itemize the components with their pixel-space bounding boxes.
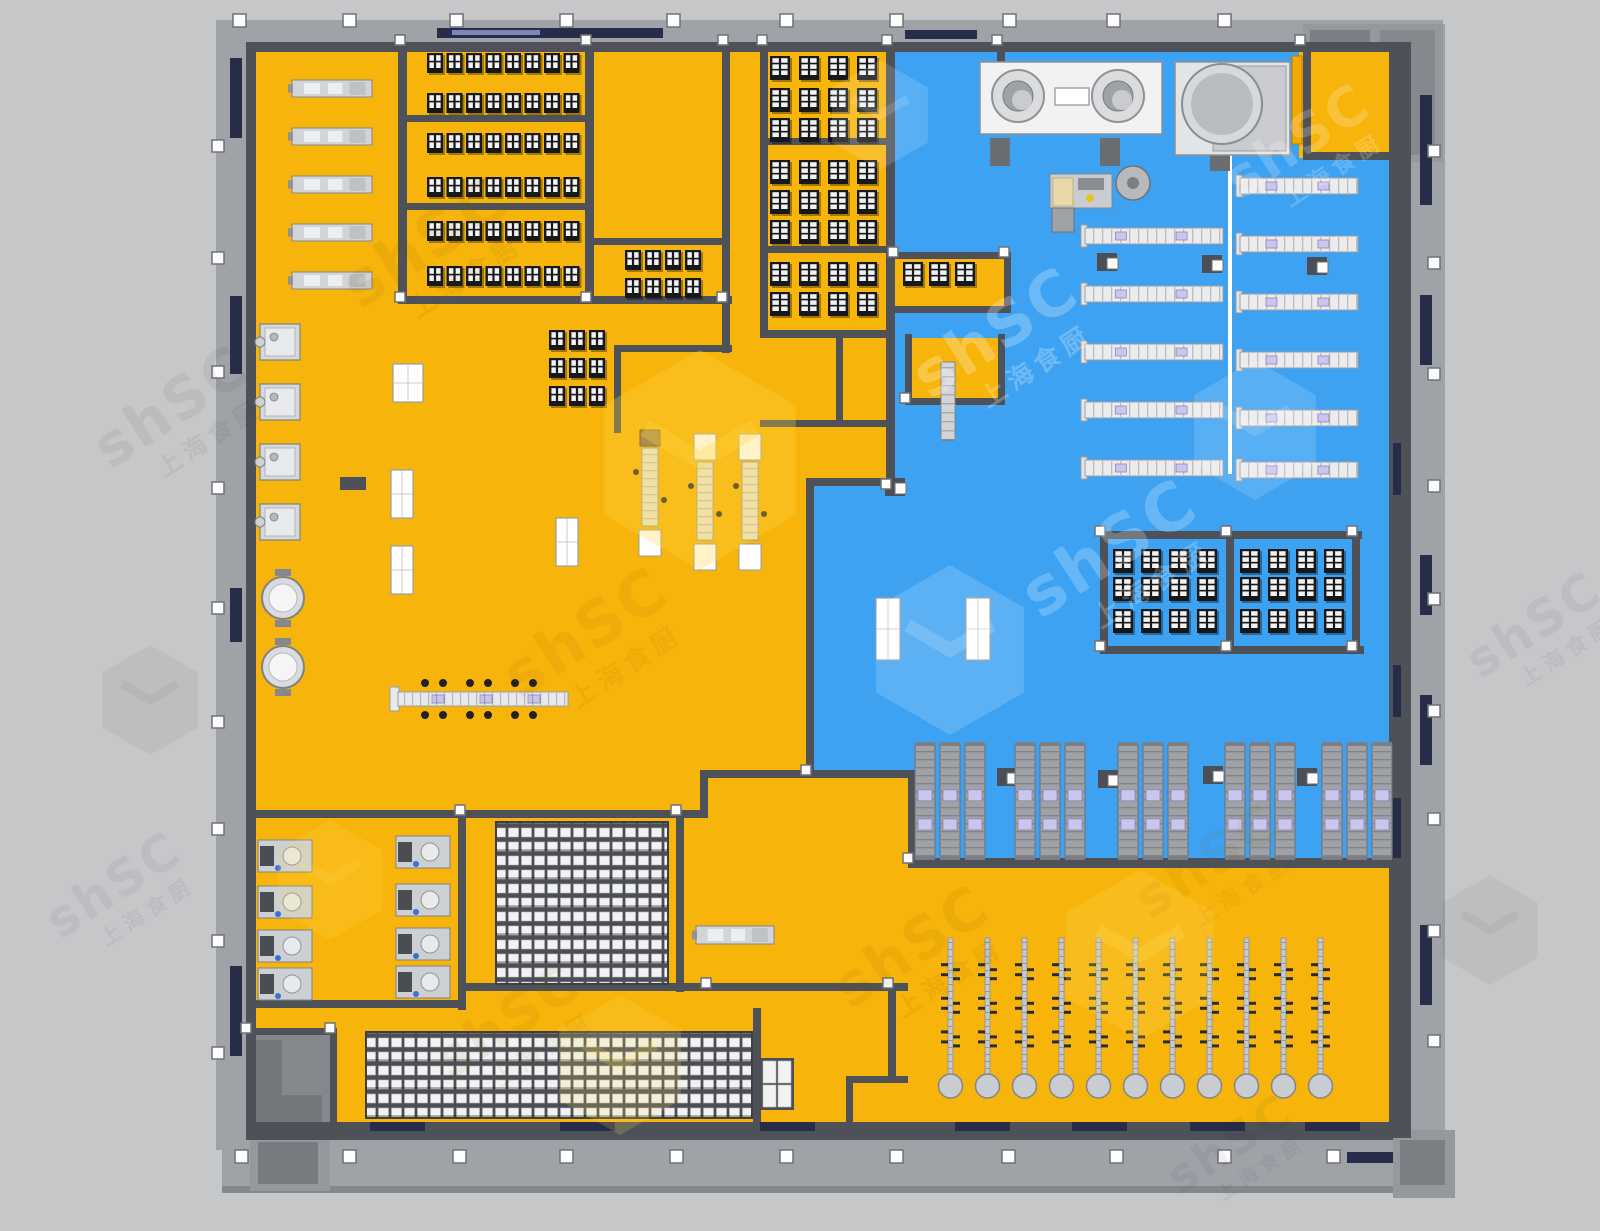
range-pane — [1208, 623, 1215, 628]
hang-rung — [1245, 1033, 1249, 1034]
trolley-stripe — [1119, 783, 1137, 784]
range-pane — [468, 62, 473, 68]
column-cube — [1428, 813, 1440, 825]
trolley-stripe — [1276, 775, 1294, 776]
hang-hook — [1126, 1040, 1133, 1043]
range-pane — [429, 142, 434, 148]
hang-rung — [1319, 970, 1323, 971]
range-pane — [781, 228, 788, 233]
range-pane — [1335, 585, 1342, 590]
hang-hook — [1212, 1011, 1219, 1014]
trolley-rack — [965, 742, 985, 860]
range-pane — [654, 259, 659, 265]
range-pane — [667, 287, 672, 293]
trolley-stripe — [1373, 815, 1391, 816]
range-pane — [1326, 591, 1333, 596]
hang-rung — [1023, 942, 1027, 943]
hang-rung — [1282, 1040, 1286, 1041]
column-cube — [1221, 641, 1231, 651]
range-pane — [507, 55, 512, 61]
trolley-stripe — [916, 807, 934, 808]
range-pane — [573, 268, 578, 274]
hang-hook — [1138, 1044, 1145, 1047]
trolley-screen — [1018, 819, 1032, 830]
grid-shelf-line — [366, 1115, 752, 1117]
range-pane — [830, 270, 837, 275]
range-unit — [828, 292, 850, 318]
range-pane — [830, 174, 837, 179]
range-pane — [571, 388, 576, 394]
range-pane — [1335, 551, 1342, 556]
wall-segment — [760, 42, 768, 338]
trolley-stripe — [916, 759, 934, 760]
range-pane — [527, 179, 532, 185]
bench-tick — [1210, 287, 1211, 301]
range-unit — [770, 118, 792, 144]
column-cube — [1428, 925, 1440, 937]
range-unit — [525, 177, 543, 199]
range-pane — [781, 306, 788, 311]
trolley-stripe — [1373, 847, 1391, 848]
range-pane — [1326, 551, 1333, 556]
range-unit — [770, 56, 792, 82]
hang-rung — [1171, 1033, 1175, 1034]
trolley-stripe — [1348, 759, 1366, 760]
hang-hook — [1323, 1035, 1330, 1038]
packing-tick — [500, 693, 501, 705]
trolley-stripe — [1373, 831, 1391, 832]
range-pane — [1279, 623, 1286, 628]
range-pane — [488, 142, 493, 148]
column-cube — [212, 140, 224, 152]
bench-tick — [1293, 237, 1294, 251]
range-pane — [694, 280, 699, 286]
range-unit — [505, 133, 523, 155]
hang-rung — [1060, 1061, 1064, 1062]
hang-rung — [1023, 949, 1027, 950]
range-pane — [674, 252, 679, 258]
range-unit — [1169, 609, 1191, 635]
hang-rung — [1060, 1033, 1064, 1034]
range-pane — [558, 360, 563, 366]
hang-rung — [1097, 1054, 1101, 1055]
range-pane — [449, 55, 454, 61]
range-pane — [772, 174, 779, 179]
machine-panel — [304, 179, 320, 190]
trolley-stripe — [1041, 831, 1059, 832]
kettle-bowl — [269, 584, 297, 612]
range-pane — [527, 135, 532, 141]
range-pane — [1326, 563, 1333, 568]
range-unit — [770, 190, 792, 216]
column-cube — [1221, 526, 1231, 536]
range-unit — [427, 133, 445, 155]
range-pane — [634, 252, 639, 258]
trolley-stripe — [1323, 783, 1341, 784]
range-pane — [553, 275, 558, 281]
work-table — [391, 546, 413, 594]
hang-rung — [1097, 1026, 1101, 1027]
window-slit — [955, 1122, 1010, 1131]
hang-rung — [1319, 949, 1323, 950]
range-unit — [544, 133, 562, 155]
packing-tick — [460, 693, 461, 705]
range-pane — [546, 135, 551, 141]
hang-hook — [1200, 1030, 1207, 1033]
range-pane — [475, 142, 480, 148]
hang-rung — [1060, 991, 1064, 992]
range-pane — [772, 70, 779, 75]
range-unit — [799, 220, 821, 246]
trolley-screen — [1068, 790, 1082, 801]
range-pane — [1326, 585, 1333, 590]
range-pane — [810, 64, 817, 69]
bench-tick — [1111, 287, 1112, 301]
window-slit — [1420, 295, 1432, 365]
packing-screen — [432, 695, 444, 703]
window-slit — [1072, 1122, 1127, 1131]
column-cube — [667, 14, 680, 27]
range-pane — [475, 102, 480, 108]
door-cube-face — [1107, 258, 1118, 269]
hang-rung — [1245, 1040, 1249, 1041]
range-pane — [772, 228, 779, 233]
range-pane — [1180, 623, 1187, 628]
bench-tick — [1093, 461, 1094, 475]
wall-segment — [722, 42, 730, 304]
hang-rung — [1245, 1061, 1249, 1062]
hang-rung — [1319, 942, 1323, 943]
hang-hook — [941, 1007, 948, 1010]
range-pane — [781, 222, 788, 227]
range-pane — [566, 62, 571, 68]
range-pane — [573, 55, 578, 61]
range-pane — [667, 252, 672, 258]
hang-hook — [1274, 1030, 1281, 1033]
range-pane — [1171, 623, 1178, 628]
range-unit — [1268, 577, 1290, 603]
range-pane — [957, 264, 964, 269]
trolley-stripe — [1348, 839, 1366, 840]
column-cube — [1107, 14, 1120, 27]
hang-rung — [1023, 998, 1027, 999]
range-pane — [468, 55, 473, 61]
hang-rung — [1060, 998, 1064, 999]
hang-rung — [1208, 1068, 1212, 1069]
range-pane — [830, 222, 837, 227]
column-cube — [212, 823, 224, 835]
trolley-stripe — [1373, 775, 1391, 776]
bench-tick — [1111, 403, 1112, 417]
trolley-cap — [1065, 856, 1085, 860]
trolley-stripe — [1226, 759, 1244, 760]
column-cube — [455, 805, 465, 815]
trolley-stripe — [1041, 815, 1059, 816]
machine-panel — [708, 929, 724, 941]
range-pane — [810, 174, 817, 179]
range-pane — [1242, 623, 1249, 628]
trolley-stripe — [1041, 807, 1059, 808]
range-pane — [578, 388, 583, 394]
trolley-stripe — [1373, 807, 1391, 808]
bench-tick — [1192, 461, 1193, 475]
range-pane — [1171, 617, 1178, 622]
bench-screen — [1115, 348, 1126, 356]
range-pane — [551, 339, 556, 345]
range-pane — [566, 135, 571, 141]
range-pane — [571, 395, 576, 401]
range-body — [486, 53, 502, 73]
range-pane — [566, 55, 571, 61]
range-pane — [1335, 591, 1342, 596]
range-pane — [475, 62, 480, 68]
trolley-stripe — [1066, 751, 1084, 752]
range-pane — [868, 204, 875, 209]
processing-machine-horizontal — [288, 224, 372, 241]
hang-hook — [1237, 1030, 1244, 1033]
packing-tick — [556, 693, 557, 705]
bench-screen — [1176, 464, 1187, 472]
hang-hook — [1311, 1007, 1318, 1010]
trolley-stripe — [1323, 775, 1341, 776]
range-pane — [801, 300, 808, 305]
trolley-stripe — [1016, 751, 1034, 752]
range-pane — [1335, 617, 1342, 622]
hang-rung — [1023, 991, 1027, 992]
trolley-stripe — [1144, 767, 1162, 768]
column-cube — [881, 479, 891, 489]
window-slit — [370, 1122, 425, 1131]
range-pane — [534, 179, 539, 185]
bench-tick — [1293, 353, 1294, 367]
range-pane — [429, 55, 434, 61]
hang-rung — [1282, 984, 1286, 985]
hang-hook — [1064, 1035, 1071, 1038]
range-pane — [1307, 585, 1314, 590]
hang-base-wheel — [1124, 1074, 1148, 1098]
trolley-stripe — [1323, 807, 1341, 808]
hang-rung — [1171, 1040, 1175, 1041]
range-row — [549, 358, 607, 380]
range-pane — [598, 367, 603, 373]
trolley-rack — [1347, 742, 1367, 860]
range-pane — [566, 142, 571, 148]
range-pane — [546, 62, 551, 68]
range-pane — [781, 162, 788, 167]
trolley-stripe — [1119, 831, 1137, 832]
trolley-stripe — [1251, 759, 1269, 760]
range-pane — [830, 204, 837, 209]
hang-hook — [1015, 1007, 1022, 1010]
range-pane — [781, 192, 788, 197]
bench-tick — [1284, 295, 1285, 309]
packing-screen — [480, 695, 492, 703]
trolley-v-shelf — [942, 412, 954, 413]
range-pane — [507, 275, 512, 281]
trolley-stripe — [1041, 847, 1059, 848]
hang-rung — [1171, 1047, 1175, 1048]
hang-rung — [949, 1054, 953, 1055]
range-pane — [1152, 611, 1159, 616]
bench-screen — [1266, 298, 1277, 306]
hang-hook — [1274, 963, 1281, 966]
small-rack — [760, 1058, 794, 1110]
range-pane — [429, 135, 434, 141]
column-cube — [560, 1150, 573, 1163]
trolley-stripe — [1119, 775, 1137, 776]
machine-panel — [328, 227, 342, 238]
hang-rung — [1097, 1068, 1101, 1069]
trolley-stripe — [941, 815, 959, 816]
range-pane — [591, 395, 596, 401]
trolley-stripe — [1119, 759, 1137, 760]
wall-segment — [585, 42, 594, 304]
range-pane — [781, 120, 788, 125]
hang-hook — [1064, 1011, 1071, 1014]
hang-hook — [1052, 1007, 1059, 1010]
range-pane — [553, 268, 558, 274]
bench-tick — [1356, 411, 1357, 425]
bench-tick — [1302, 295, 1303, 309]
range-pane — [566, 268, 571, 274]
range-pane — [1307, 611, 1314, 616]
range-pane — [546, 268, 551, 274]
bench-top — [1085, 344, 1223, 360]
tilt-valve — [275, 955, 281, 961]
hang-rung — [1319, 963, 1323, 964]
range-unit — [589, 386, 607, 408]
range-body — [466, 93, 482, 113]
trolley-stripe — [1144, 815, 1162, 816]
machine-panel — [304, 227, 320, 238]
column-cube — [212, 602, 224, 614]
range-pane — [781, 174, 788, 179]
trolley-stripe — [1066, 783, 1084, 784]
range-pane — [475, 95, 480, 101]
floorplan-canvas: shSC上海食厨shSC上海食厨shSC上海食厨shSC上海食厨shSC上海食厨… — [0, 0, 1600, 1231]
hang-rung — [949, 1033, 953, 1034]
range-body — [427, 93, 443, 113]
bench-row — [1081, 225, 1223, 247]
range-unit — [685, 278, 703, 300]
bench-tick — [1347, 353, 1348, 367]
trolley-stripe — [1041, 839, 1059, 840]
trolley-stripe — [1251, 775, 1269, 776]
range-pane — [534, 135, 539, 141]
range-unit — [1240, 549, 1262, 575]
column-cube — [1428, 257, 1440, 269]
steamer-knob — [255, 337, 265, 347]
wall-segment — [753, 1008, 761, 1133]
bench-screen — [1318, 298, 1329, 306]
hang-rung — [1208, 1061, 1212, 1062]
hang-hook — [1027, 968, 1034, 971]
range-pane — [507, 135, 512, 141]
chair — [529, 711, 537, 719]
range-pane — [839, 162, 846, 167]
range-unit — [564, 266, 582, 288]
range-pane — [634, 280, 639, 286]
hang-hook — [990, 1035, 997, 1038]
hang-rung — [986, 1026, 990, 1027]
range-pane — [429, 102, 434, 108]
trolley-screen — [1375, 790, 1389, 801]
hang-hook — [941, 1040, 948, 1043]
hang-rung — [1208, 1054, 1212, 1055]
range-pane — [839, 70, 846, 75]
range-pane — [591, 360, 596, 366]
tilting-kettle — [396, 966, 450, 998]
hang-hook — [1101, 1035, 1108, 1038]
bench-tick — [1219, 345, 1220, 359]
trolley-screen — [1350, 790, 1364, 801]
hang-hook — [1212, 1035, 1219, 1038]
hang-rung — [949, 1047, 953, 1048]
tilting-kettle — [396, 884, 450, 916]
column-cube — [581, 292, 591, 302]
range-pane — [810, 132, 817, 137]
column-cube — [450, 14, 463, 27]
range-pane — [868, 234, 875, 239]
range-pane — [966, 270, 973, 275]
trolley-group — [1015, 742, 1085, 860]
bench-tick — [1093, 229, 1094, 243]
range-unit — [466, 53, 484, 75]
trolley-stripe — [1373, 759, 1391, 760]
range-unit — [544, 221, 562, 243]
range-unit — [505, 266, 523, 288]
range-pane — [551, 367, 556, 373]
trolley-stripe — [1016, 839, 1034, 840]
hang-hook — [1323, 1002, 1330, 1005]
range-pane — [449, 142, 454, 148]
hang-rung — [1319, 1040, 1323, 1041]
range-pane — [772, 294, 779, 299]
range-pane — [553, 135, 558, 141]
machine-panel — [328, 131, 342, 142]
window-slit — [230, 966, 242, 1056]
range-pane — [868, 306, 875, 311]
bench-screen — [1318, 240, 1329, 248]
trolley-stripe — [1169, 751, 1187, 752]
range-pane — [551, 395, 556, 401]
hang-rung — [1245, 942, 1249, 943]
range-pane — [801, 270, 808, 275]
trolley-stripe — [1276, 759, 1294, 760]
hang-rung — [1171, 1068, 1175, 1069]
bench-tick — [1111, 461, 1112, 475]
hang-hook — [1286, 1035, 1293, 1038]
hang-rung — [1282, 963, 1286, 964]
hang-rung — [1134, 1054, 1138, 1055]
hang-rung — [1282, 1005, 1286, 1006]
machine-panel — [304, 83, 320, 94]
range-pane — [456, 135, 461, 141]
mixer-tray — [1053, 178, 1073, 206]
trolley-stripe — [916, 831, 934, 832]
grid-shelf-line — [366, 1059, 752, 1061]
range-unit — [799, 160, 821, 186]
packing-tick — [444, 693, 445, 705]
column-cube — [241, 1023, 251, 1033]
range-pane — [1335, 611, 1342, 616]
trolley-stripe — [1066, 831, 1084, 832]
hang-hook — [1249, 1035, 1256, 1038]
work-table — [391, 470, 413, 518]
tilt-bowl — [421, 891, 439, 909]
range-unit — [466, 93, 484, 115]
range-pane — [868, 192, 875, 197]
